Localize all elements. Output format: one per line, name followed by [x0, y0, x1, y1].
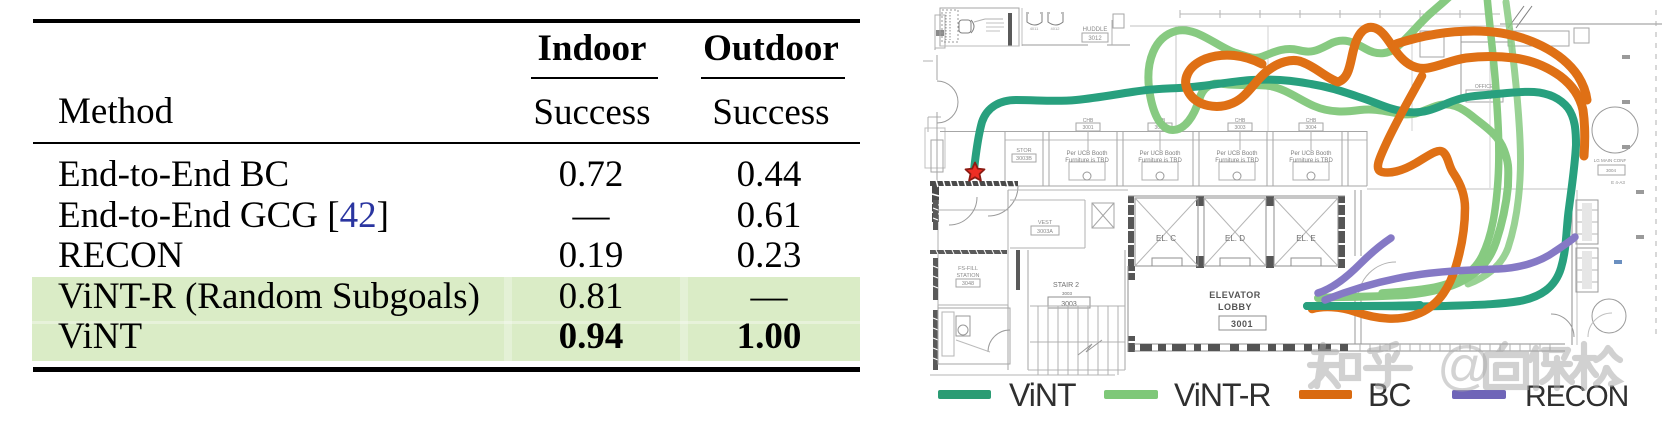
svg-text:3004: 3004 — [1606, 168, 1617, 173]
svg-text:OFFICE: OFFICE — [1475, 84, 1494, 90]
svg-text:3003: 3003 — [1061, 301, 1077, 308]
svg-text:Furniture is TBD: Furniture is TBD — [1065, 158, 1109, 164]
svg-text:3001: 3001 — [1082, 125, 1093, 131]
svg-text:Per UCB Booth: Per UCB Booth — [1139, 151, 1180, 157]
svg-text:LOBBY: LOBBY — [1218, 302, 1252, 312]
svg-text:Furniture is TBD: Furniture is TBD — [1215, 158, 1259, 164]
svg-text:4011: 4011 — [1030, 26, 1039, 31]
svg-text:ViNT-R: ViNT-R — [1174, 377, 1271, 413]
svg-text:3003A: 3003A — [1037, 229, 1053, 235]
svg-text:3003: 3003 — [1234, 125, 1245, 131]
svg-text:LG MAIN CONF: LG MAIN CONF — [1594, 158, 1627, 163]
svg-text:Per UCB Booth: Per UCB Booth — [1290, 151, 1331, 157]
svg-text:3001: 3001 — [1231, 319, 1253, 329]
svg-text:EL. D: EL. D — [1225, 234, 1245, 243]
svg-text:STATION: STATION — [956, 273, 979, 279]
svg-text:ViNT: ViNT — [1009, 377, 1076, 413]
svg-text:EL. C: EL. C — [1156, 234, 1176, 243]
svg-text:3003B: 3003B — [1016, 156, 1032, 162]
svg-text:STAIR 2: STAIR 2 — [1053, 282, 1079, 289]
svg-text:3012: 3012 — [1088, 36, 1102, 42]
svg-text:4012: 4012 — [1051, 26, 1061, 31]
svg-text:VEST: VEST — [1038, 220, 1053, 226]
svg-text:Per UCB Booth: Per UCB Booth — [1066, 151, 1107, 157]
svg-text:3048: 3048 — [962, 281, 974, 287]
svg-text:Furniture is TBD: Furniture is TBD — [1138, 158, 1182, 164]
svg-text:@: @ — [1437, 336, 1492, 396]
svg-text:Furniture is TBD: Furniture is TBD — [1289, 158, 1333, 164]
svg-text:HUDDLE: HUDDLE — [1083, 27, 1108, 33]
svg-text:Per UCB Booth: Per UCB Booth — [1216, 151, 1257, 157]
svg-text:E 4-A3: E 4-A3 — [1611, 180, 1625, 185]
svg-text:3003: 3003 — [1062, 291, 1073, 296]
svg-text:ELEVATOR: ELEVATOR — [1209, 290, 1261, 300]
svg-text:STOR: STOR — [1016, 148, 1031, 154]
svg-text:FS-FILL: FS-FILL — [958, 266, 978, 272]
svg-text:EL. E: EL. E — [1296, 234, 1316, 243]
svg-text:3004: 3004 — [1305, 125, 1316, 131]
